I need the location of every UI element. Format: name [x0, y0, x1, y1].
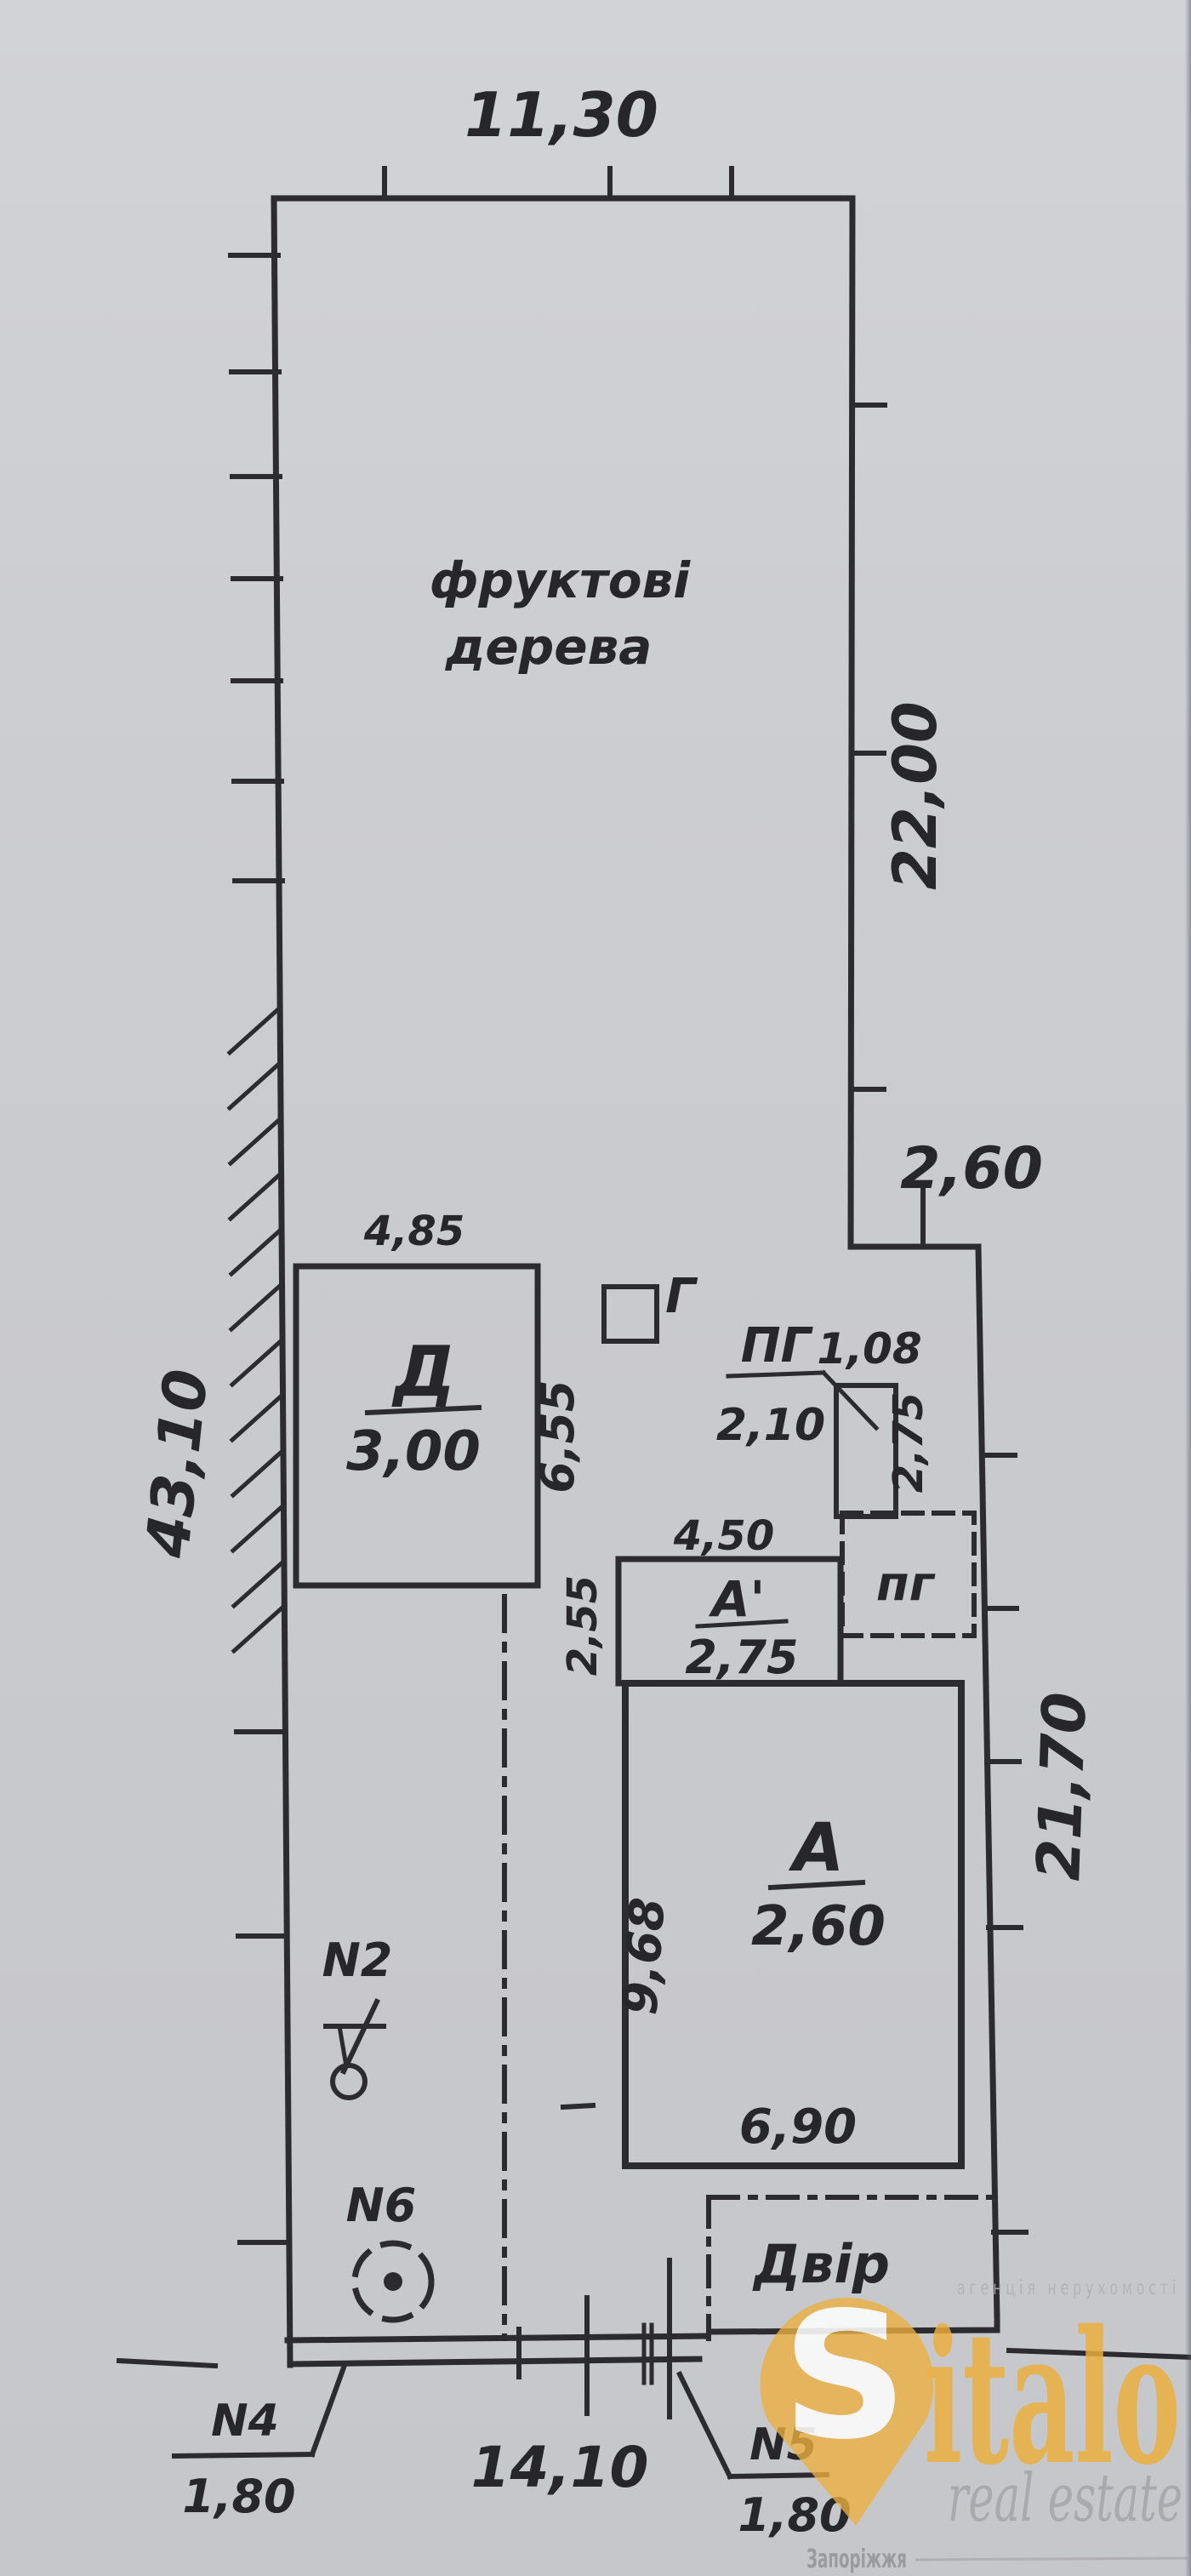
dim-right-lower: 21,70	[1023, 1691, 1100, 1882]
hatch-mark	[231, 1119, 280, 1163]
building-a1-letter: А'	[709, 1570, 766, 1628]
scanned-site-plan: 11,30 фруктові дерева 22,00 2,60 43,10 2…	[0, 0, 1191, 2576]
hatch-mark	[231, 1285, 281, 1329]
dim-right-upper: 22,00	[880, 701, 950, 889]
hatch-mark	[234, 1562, 283, 1606]
boundary-dash-mark	[563, 2105, 593, 2107]
fence-bottom-lower-line	[290, 2359, 699, 2364]
n5-leader-line	[680, 2374, 730, 2476]
neighbor-fence-left	[119, 2361, 215, 2366]
hatch-mark	[233, 1506, 282, 1551]
structure-pg-side-dim: 2,75	[885, 1392, 932, 1493]
n4-leader-line	[312, 2368, 344, 2454]
internal-boundaries	[504, 1596, 989, 2339]
hatch-mark	[230, 1064, 279, 1108]
marker-n6-label: N6	[346, 2179, 417, 2232]
hatch-mark	[232, 1340, 282, 1385]
hatch-mark	[231, 1174, 280, 1219]
boundary-left	[274, 198, 290, 2365]
structure-pg-dim-a: 1,08	[817, 1324, 921, 1374]
pg-leader-line	[823, 1373, 876, 1428]
building-d-side-dim: 6,55	[531, 1379, 584, 1493]
watermark-subtitle: real estate	[948, 2460, 1182, 2537]
watermark-city: Запоріжжя	[806, 2545, 907, 2574]
gate-n4-label: N4	[211, 2396, 279, 2447]
building-a1-top-dim: 4,50	[673, 1512, 774, 1560]
dim-step: 2,60	[900, 1135, 1043, 1202]
garden-label-line1: фруктові	[430, 551, 691, 609]
dim-bottom-width: 14,10	[471, 2435, 649, 2500]
well-symbol-dot	[384, 2272, 402, 2291]
survey-symbols	[326, 2002, 431, 2320]
garden-label-line2: дерева	[445, 618, 652, 676]
hatch-mark	[232, 1396, 282, 1440]
hatch-mark	[230, 1008, 279, 1053]
left-boundary-hatching	[230, 1008, 283, 1651]
structure-pg-letter: ПГ	[741, 1318, 814, 1374]
tree-symbol-diagonal	[344, 2002, 377, 2071]
tree-symbol-edge	[339, 2026, 346, 2066]
building-g-outline	[604, 1287, 657, 1341]
hatch-mark	[231, 1230, 281, 1274]
site-plan-drawing: 11,30 фруктові дерева 22,00 2,60 43,10 2…	[0, 0, 1191, 2576]
hatch-mark	[233, 1451, 282, 1495]
building-a1-side-dim: 2,55	[559, 1575, 607, 1676]
cellar-pg-letter: пг	[876, 1556, 936, 1612]
building-d-letter: Д	[390, 1332, 455, 1413]
building-a-side-dim: 9,68	[613, 1896, 675, 2017]
building-a-value: 2,60	[751, 1895, 886, 1958]
plot-boundary	[119, 198, 1191, 2366]
building-a-bottom-dim: 6,90	[739, 2099, 857, 2155]
building-g-letter: Г	[665, 1269, 698, 1324]
boundary-right-lower	[978, 1247, 997, 2319]
watermark-s-letter: S	[782, 2276, 908, 2478]
n4-label-underline	[174, 2454, 312, 2456]
tree-symbol-circle	[333, 2065, 365, 2098]
building-d-value: 3,00	[346, 1420, 481, 1483]
building-a-letter: А	[788, 1810, 844, 1887]
building-a1-value: 2,75	[685, 1631, 798, 1684]
marker-n2-label: N2	[322, 1933, 393, 1987]
hatch-mark	[234, 1607, 283, 1651]
building-d-top-dim: 4,85	[363, 1208, 464, 1255]
structure-pg-dim-b: 2,10	[716, 1400, 825, 1451]
dim-left-length: 43,10	[133, 1366, 222, 1562]
dim-top-width: 11,30	[464, 79, 658, 151]
gate-n4-width: 1,80	[182, 2470, 295, 2523]
watermark-city-rule	[915, 2558, 1188, 2560]
